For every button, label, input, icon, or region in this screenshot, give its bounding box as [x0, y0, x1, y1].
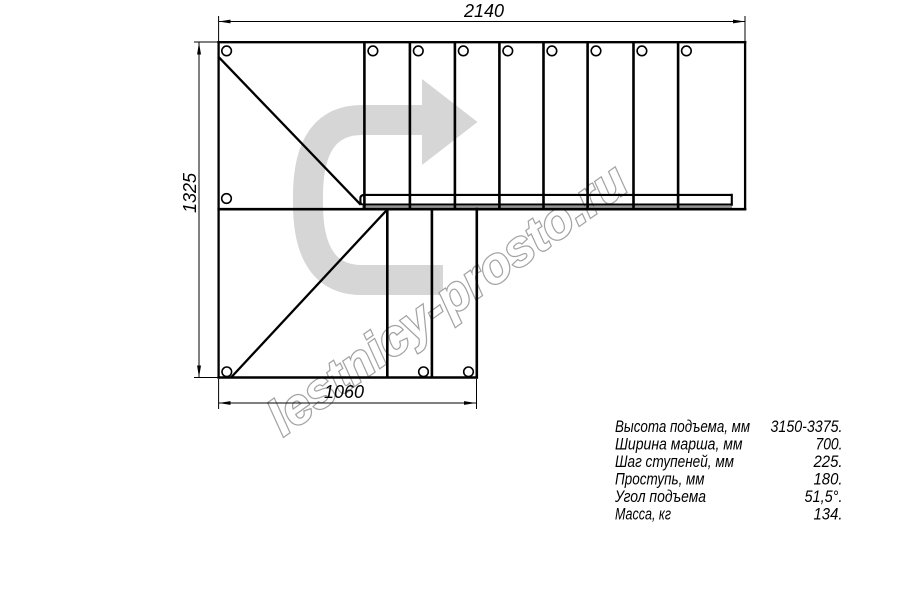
svg-text:1325: 1325	[180, 172, 200, 213]
svg-text:Шаг ступеней, мм: Шаг ступеней, мм	[615, 453, 734, 471]
svg-text:51,5°.: 51,5°.	[805, 488, 843, 506]
svg-text:225.: 225.	[813, 453, 843, 471]
svg-text:2140: 2140	[463, 1, 504, 21]
svg-text:Проступь, мм: Проступь, мм	[615, 471, 705, 489]
svg-text:700.: 700.	[816, 436, 843, 454]
svg-text:Ширина марша, мм: Ширина марша, мм	[615, 436, 743, 454]
svg-text:134.: 134.	[814, 506, 843, 524]
svg-text:Угол подъема: Угол подъема	[614, 488, 706, 506]
svg-text:1060: 1060	[324, 382, 364, 402]
svg-text:3150-3375.: 3150-3375.	[771, 418, 843, 436]
svg-text:180.: 180.	[814, 471, 843, 489]
svg-text:Масса, кг: Масса, кг	[615, 506, 671, 524]
svg-text:Высота подъема, мм: Высота подъема, мм	[615, 418, 750, 436]
